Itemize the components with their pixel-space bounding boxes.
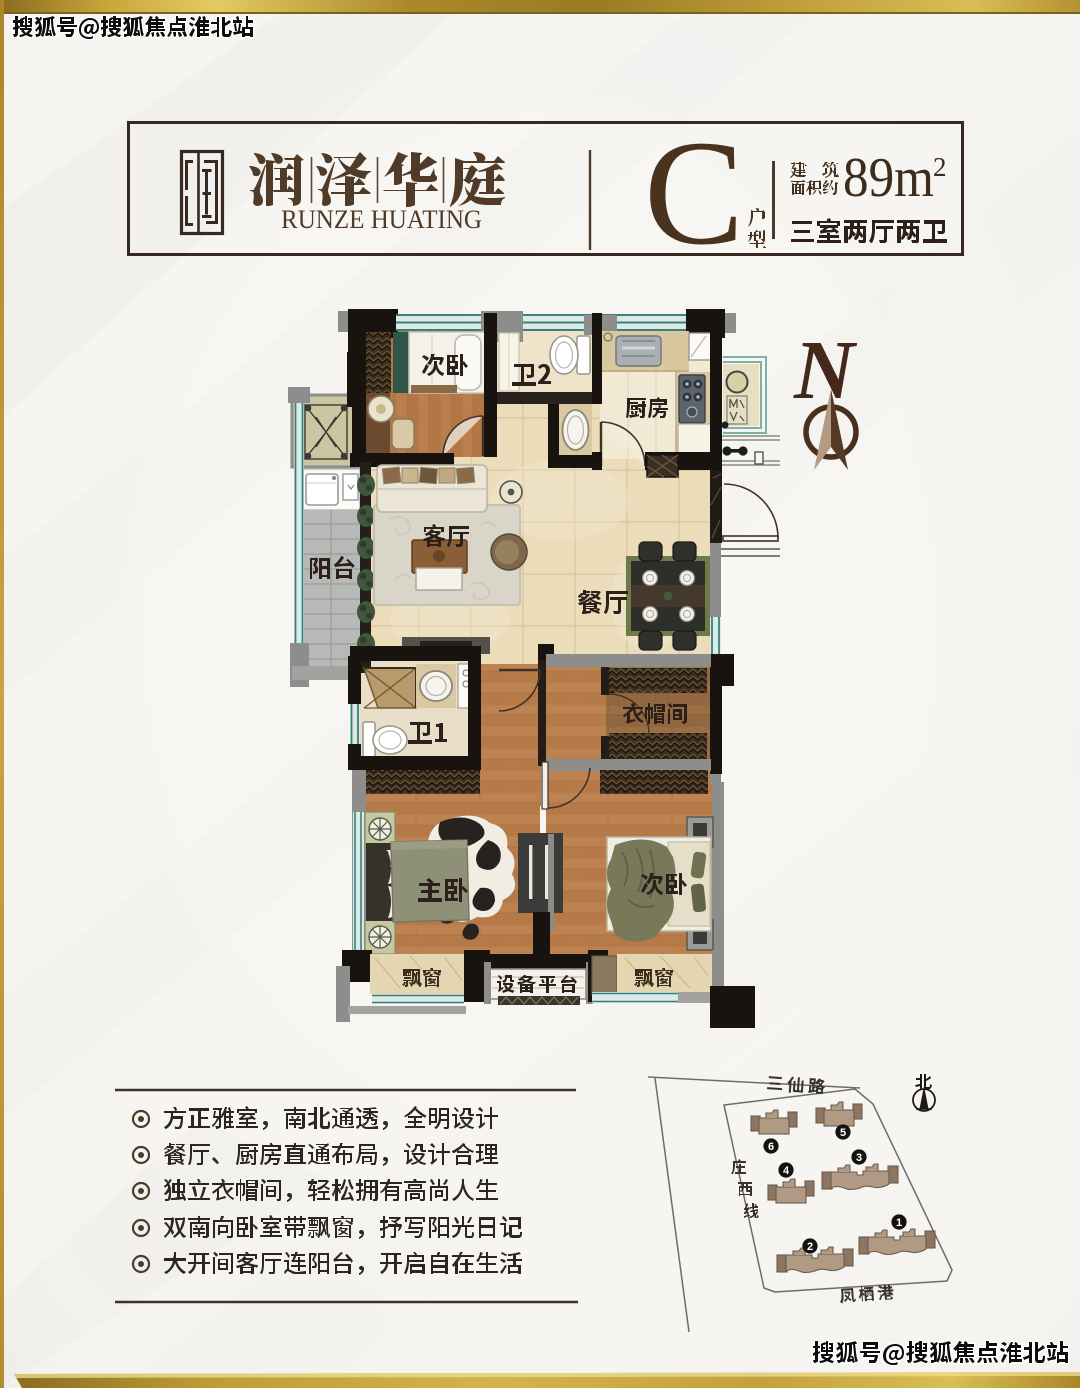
svg-text:2: 2: [933, 152, 947, 182]
svg-text:RUNZE HUATING: RUNZE HUATING: [281, 205, 482, 234]
svg-text:1: 1: [896, 1217, 902, 1229]
svg-text:89m: 89m: [843, 147, 934, 209]
svg-text:4: 4: [783, 1165, 790, 1177]
svg-text:C: C: [644, 110, 744, 276]
svg-text:5: 5: [840, 1127, 846, 1139]
svg-text:N: N: [793, 324, 858, 417]
svg-text:2: 2: [807, 1241, 813, 1253]
svg-text:3: 3: [856, 1152, 862, 1164]
svg-text:6: 6: [768, 1141, 774, 1153]
